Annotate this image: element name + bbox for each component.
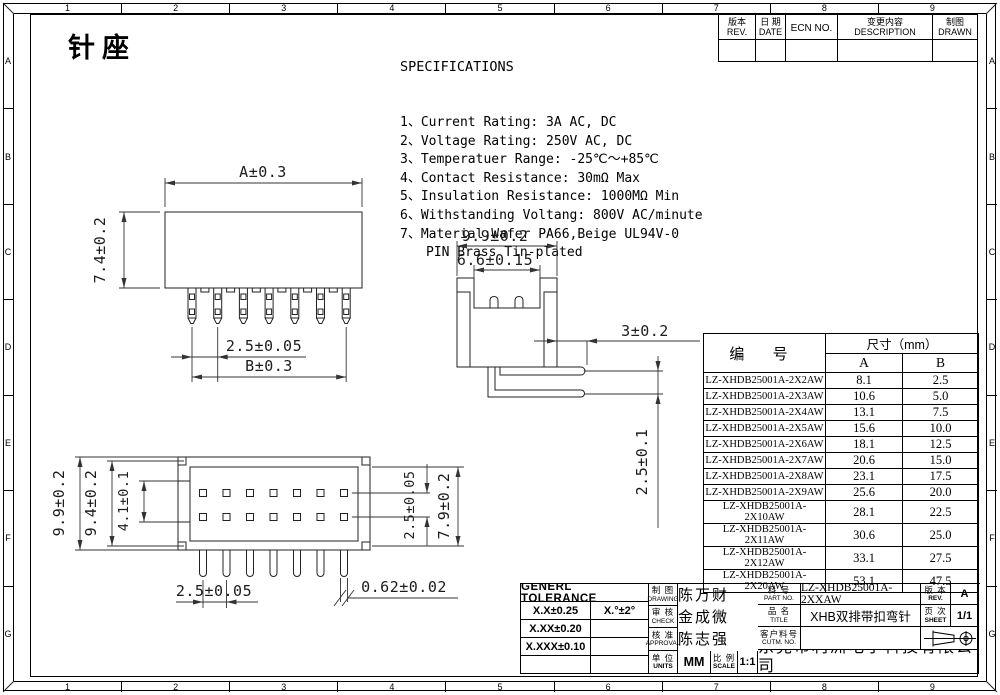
grid-column-label: 7 [663,682,771,692]
parts-cell-b: 2.5 [903,373,979,389]
parts-cell-b: 12.5 [903,437,979,453]
grid-row-label: E [3,396,13,491]
revision-table-empty-row [719,40,977,61]
rev-label: 版 本 REV. [921,584,951,605]
grid-column-label: 3 [230,3,338,13]
tolerance-heading: GENERL TOLERANCE [521,584,649,602]
spec-line: 1、Current Rating: 3A AC, DC [400,114,703,133]
spec-line: 7、Material:Wafer PA66,Beige UL94V-0 [400,226,703,245]
sheet-title: 针座 [68,26,136,65]
parts-row: LZ-XHDB25001A-2X7AW20.615.0 [704,453,979,469]
tolerance-row: X.XX±0.20 [521,620,649,638]
grid-column-label: 9 [879,3,986,13]
signoff-role-label: 制 图DRAWING [649,584,678,606]
grid-row-label: B [987,109,997,204]
units-value: MM [678,651,711,674]
parts-cell-a: 33.1 [826,547,903,570]
rev-header-cell: 制图DRAWN [933,15,977,40]
parts-row: LZ-XHDB25001A-2X11AW30.625.0 [704,524,979,547]
spec-line: 3、Temperatuer Range: -25℃～+85℃ [400,151,703,170]
grid-row-label: B [3,109,13,204]
rev-empty-cell [719,40,756,61]
rev-header-cell: ECN NO. [786,15,838,40]
tolerance-value [591,656,649,674]
rev-empty-cell [756,40,786,61]
customer-no-value [801,627,921,650]
scale-value: 1:1 [738,651,758,674]
projection-symbol [921,627,979,650]
specifications-heading: SPECIFICATIONS [400,58,703,77]
parts-cell-part_no: LZ-XHDB25001A-2X9AW [704,485,826,501]
signoff-row: 制 图DRAWING陈万财 [649,584,758,606]
grid-column-label: 8 [771,3,879,13]
parts-row: LZ-XHDB25001A-2X4AW13.17.5 [704,405,979,421]
tolerance-value: X.XXX±0.10 [521,638,591,656]
grid-column-label: 9 [879,682,986,692]
tolerance-value: X.X±0.25 [521,602,591,620]
product-name-label: 品 名 TITLE [758,605,801,627]
revision-table: 版本REV.日 期DATEECN NO.变更内容DESCRIPTION制图DRA… [718,14,978,62]
parts-row: LZ-XHDB25001A-2X5AW15.610.0 [704,421,979,437]
ruler-left: ABCDEFG [3,14,14,681]
parts-cell-b: 17.5 [903,469,979,485]
tolerance-value [591,638,649,656]
company-name-zh: 东莞市利洲电子科技有限公司 [758,650,978,674]
spec-line: 2、Voltage Rating: 250V AC, DC [400,133,703,152]
sheet-value: 1/1 [951,605,979,627]
parts-cell-part_no: LZ-XHDB25001A-2X5AW [704,421,826,437]
parts-cell-b: 10.0 [903,421,979,437]
rev-empty-cell [786,40,838,61]
dim-a-header: A [826,354,903,373]
grid-column-label: 5 [446,682,554,692]
drawing-sheet: 123456789 123456789 ABCDEFG ABCDEFG 针座 S… [0,0,1000,695]
grid-column-label: 2 [122,3,230,13]
parts-cell-part_no: LZ-XHDB25001A-2X4AW [704,405,826,421]
grid-row-label: G [3,587,13,681]
parts-row: LZ-XHDB25001A-2X12AW33.127.5 [704,547,979,570]
parts-cell-part_no: LZ-XHDB25001A-2X8AW [704,469,826,485]
ruler-bottom: 123456789 [14,681,986,692]
first-angle-projection-icon [922,628,978,649]
signoff-name: 陈志强 [678,628,758,651]
ruler-top: 123456789 [14,3,986,14]
grid-row-label: A [3,14,13,109]
company-cell: 东莞市利洲电子科技有限公司 DONGGUAN LIZHOU ELECTRONIC… [758,650,979,674]
parts-cell-b: 22.5 [903,501,979,524]
spec-line: 6、Withstanding Voltang: 800V AC/minute [400,207,703,226]
parts-cell-a: 25.6 [826,485,903,501]
parts-cell-a: 8.1 [826,373,903,389]
spec-line: 4、Contact Resistance: 30mΩ Max [400,170,703,189]
grid-column-label: 8 [771,682,879,692]
grid-column-label: 3 [230,682,338,692]
grid-row-label: C [3,205,13,300]
parts-cell-part_no: LZ-XHDB25001A-2X6AW [704,437,826,453]
parts-row: LZ-XHDB25001A-2X6AW18.112.5 [704,437,979,453]
product-name-value: XHB双排带扣弯针 [801,605,921,627]
rev-header-cell: 版本REV. [719,15,756,40]
units-label: 单 位 UNITS [649,651,678,674]
tolerance-row [521,656,649,674]
parts-cell-b: 27.5 [903,547,979,570]
part-no-value: LZ-XHDB25001A-2XXAW [801,584,921,605]
parts-row: LZ-XHDB25001A-2X3AW10.65.0 [704,389,979,405]
parts-row: LZ-XHDB25001A-2X8AW23.117.5 [704,469,979,485]
grid-row-label: A [987,14,997,109]
signoff-row: 审 核CHECK金成微 [649,606,758,628]
tolerance-value [591,620,649,638]
grid-row-label: E [987,396,997,491]
parts-cell-a: 13.1 [826,405,903,421]
tolerance-row: X.X±0.25X.°±2° [521,602,649,620]
parts-cell-b: 15.0 [903,453,979,469]
grid-column-label: 6 [555,682,663,692]
grid-row-label: D [987,300,997,395]
signoff-role-label: 审 核CHECK [649,606,678,628]
rev-header-cell: 变更内容DESCRIPTION [838,15,933,40]
grid-column-label: 4 [338,3,446,13]
parts-dimension-table: 编 号 尺寸（mm） A B LZ-XHDB25001A-2X2AW8.12.5… [703,333,978,583]
rev-empty-cell [933,40,977,61]
spec-line: 5、Insulation Resistance: 1000MΩ Min [400,188,703,207]
title-block: GENERL TOLERANCE X.X±0.25X.°±2°X.XX±0.20… [520,583,980,674]
grid-column-label: 6 [555,3,663,13]
parts-cell-a: 30.6 [826,524,903,547]
part-no-label: 料 号 PART NO. [758,584,801,605]
signoff-name: 金成微 [678,606,758,628]
parts-cell-part_no: LZ-XHDB25001A-2X2AW [704,373,826,389]
grid-column-label: 1 [14,682,122,692]
tolerance-value: X.XX±0.20 [521,620,591,638]
grid-row-label: F [987,491,997,586]
customer-no-label: 客户料号 CUTM. NO. [758,627,801,650]
parts-cell-part_no: LZ-XHDB25001A-2X3AW [704,389,826,405]
sheet-label: 页 次 SHEET [921,605,951,627]
signoff-name: 陈万财 [678,584,758,606]
parts-cell-a: 20.6 [826,453,903,469]
grid-column-label: 1 [14,3,122,13]
revision-table-header: 版本REV.日 期DATEECN NO.变更内容DESCRIPTION制图DRA… [719,15,977,40]
parts-cell-b: 25.0 [903,524,979,547]
scale-label: 比 例 SCALE [711,651,738,674]
parts-cell-a: 23.1 [826,469,903,485]
dim-b-header: B [903,354,979,373]
grid-row-label: G [987,587,997,681]
tolerance-value [521,656,591,674]
parts-cell-part_no: LZ-XHDB25001A-2X10AW [704,501,826,524]
grid-column-label: 7 [663,3,771,13]
tolerance-row: X.XXX±0.10 [521,638,649,656]
rev-empty-cell [838,40,933,61]
parts-cell-part_no: LZ-XHDB25001A-2X7AW [704,453,826,469]
parts-cell-a: 28.1 [826,501,903,524]
parts-row: LZ-XHDB25001A-2X9AW25.620.0 [704,485,979,501]
parts-cell-a: 15.6 [826,421,903,437]
signoff-row: 核 准APPROVAL陈志强 [649,628,758,651]
grid-row-label: D [3,300,13,395]
tolerance-value: X.°±2° [591,602,649,620]
grid-row-label: F [3,491,13,586]
rev-header-cell: 日 期DATE [756,15,786,40]
size-column-header: 尺寸（mm） [826,334,979,354]
parts-row: LZ-XHDB25001A-2X2AW8.12.5 [704,373,979,389]
spec-line: PIN Brass Tin-plated [400,244,703,263]
parts-cell-part_no: LZ-XHDB25001A-2X11AW [704,524,826,547]
signoff-role-label: 核 准APPROVAL [649,628,678,651]
specifications-block: SPECIFICATIONS 1、Current Rating: 3A AC, … [400,21,703,300]
ruler-right: ABCDEFG [986,14,997,681]
grid-row-label: C [987,205,997,300]
grid-column-label: 4 [338,682,446,692]
parts-cell-a: 18.1 [826,437,903,453]
rev-value: A [951,584,979,605]
parts-row: LZ-XHDB25001A-2X10AW28.122.5 [704,501,979,524]
grid-column-label: 5 [446,3,554,13]
parts-cell-b: 20.0 [903,485,979,501]
parts-cell-b: 7.5 [903,405,979,421]
parts-cell-b: 5.0 [903,389,979,405]
part-number-column-header: 编 号 [704,334,826,373]
parts-cell-part_no: LZ-XHDB25001A-2X12AW [704,547,826,570]
grid-column-label: 2 [122,682,230,692]
parts-cell-a: 10.6 [826,389,903,405]
